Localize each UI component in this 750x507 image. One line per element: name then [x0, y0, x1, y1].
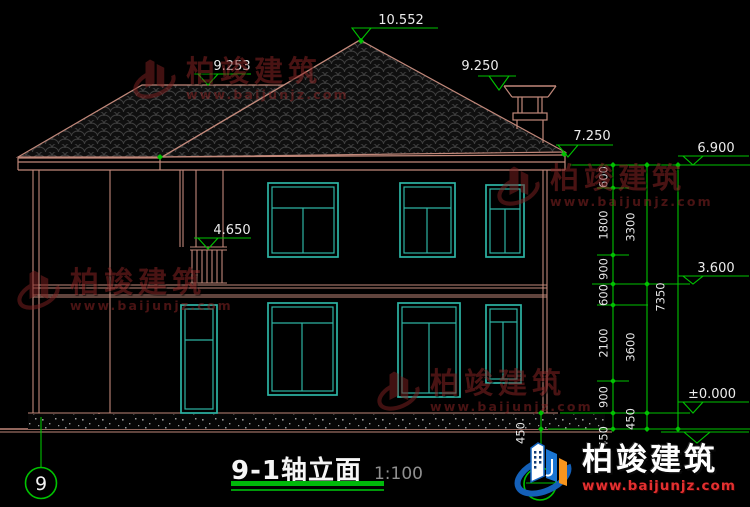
dim-value: 600 [597, 166, 611, 188]
cad-elevation-screenshot: 10.552 9.253 9.250 7.250 6.900 4.650 3.6… [0, 0, 750, 507]
dim-value: 450 [624, 408, 638, 430]
elevation-label-ground: ±0.000 [688, 387, 736, 402]
elevation-marker-right-roof [478, 76, 516, 90]
elevation-marker-top-right [678, 156, 749, 165]
fenestration-group [181, 183, 524, 413]
balcony-railing [190, 247, 227, 283]
elevation-marker-porch-roof [194, 74, 251, 85]
brand-logo: 柏竣建筑 www.baijunjz.com [514, 436, 736, 502]
window-2f-middle [400, 183, 455, 257]
dim-value: 7350 [654, 282, 668, 311]
elevation-label-floor2: 3.600 [697, 261, 734, 276]
title-underline-thick [231, 481, 384, 486]
elevation-label-right-roof: 9.250 [461, 59, 498, 74]
elevation-label-balcony: 4.650 [213, 223, 250, 238]
brand-logo-icon [514, 436, 578, 502]
elevation-label-top-right: 6.900 [697, 141, 734, 156]
dim-value: 600 [597, 284, 611, 306]
brand-url: www.baijunjz.com [582, 480, 736, 494]
axis-bubble-left-label: 9 [35, 473, 47, 495]
elevation-label-ridge: 10.552 [378, 13, 424, 28]
window-1f-left [268, 303, 337, 395]
elevation-label-porch-roof: 9.253 [213, 59, 250, 74]
dim-value: 3300 [624, 212, 638, 241]
brand-name: 柏竣建筑 [582, 445, 736, 476]
title-underline-thin [231, 489, 384, 491]
dim-value: 900 [597, 258, 611, 280]
window-2f-right [486, 185, 524, 257]
dim-value: 3600 [624, 332, 638, 361]
elevation-drawing-canvas: 10.552 9.253 9.250 7.250 6.900 4.650 3.6… [0, 0, 750, 507]
elevation-marker-ground [678, 402, 749, 413]
window-1f-middle [398, 303, 460, 397]
elevation-label-eave: 7.250 [573, 129, 610, 144]
dim-value: 2100 [597, 328, 611, 357]
window-2f-left [268, 183, 338, 257]
elevation-marker-ridge [352, 28, 438, 40]
entry-door [181, 305, 217, 413]
dim-value: 1800 [597, 210, 611, 239]
elevation-marker-floor2 [678, 276, 749, 284]
window-1f-right [486, 305, 521, 383]
dim-value: 900 [597, 386, 611, 408]
